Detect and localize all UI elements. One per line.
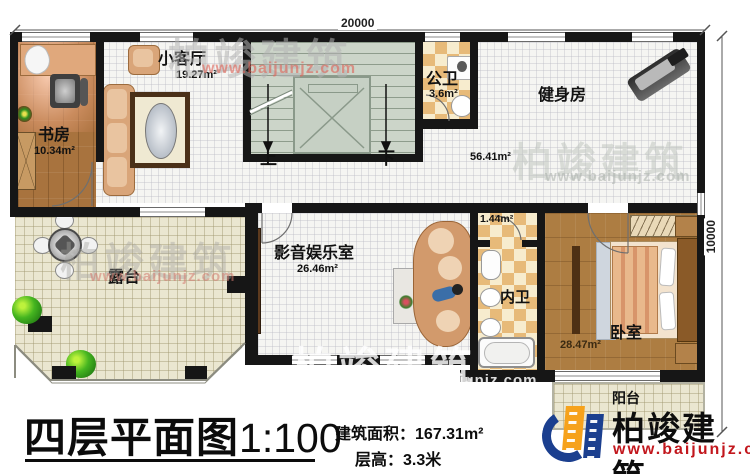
table-flowers-icon — [399, 295, 413, 309]
stat-area-value: 167.31m² — [415, 426, 484, 443]
label-public-bath: 公卫 — [426, 72, 458, 88]
wall-mid-c — [628, 203, 705, 213]
label-gym-area: 56.41m² — [470, 152, 511, 163]
plant-icon — [17, 106, 32, 122]
label-stairs-down: 下 — [378, 150, 395, 167]
media-sofa-cushion — [428, 228, 454, 254]
window — [697, 193, 705, 215]
wall-study-divider — [96, 42, 104, 162]
inner-sink-icon — [480, 288, 501, 307]
wall-bottom-b — [660, 370, 705, 382]
wall-innerbath-right — [537, 213, 545, 370]
label-study-area: 10.34m² — [34, 146, 75, 157]
title-underline — [25, 459, 315, 462]
window — [508, 32, 565, 42]
bed-blanket — [612, 246, 658, 334]
sofa-cushion — [107, 89, 127, 119]
stat-height-value: 3.3米 — [403, 452, 441, 469]
window — [22, 32, 90, 42]
floor-plan-page: 20000 10000 小客厅 19.27m² 书房 10.34m² 公卫 3.… — [0, 0, 750, 474]
brand-url-text: www.baijunjz.com — [613, 441, 750, 459]
stat-floor-height: 层高：3.3米 — [355, 446, 441, 470]
desk-chair-icon — [80, 78, 88, 106]
terrace-chair-icon — [55, 262, 74, 279]
person-head — [452, 284, 463, 295]
label-living-room: 小客厅 — [158, 52, 206, 68]
computer-screen — [55, 79, 75, 103]
label-closet-area: 1.44m² — [480, 214, 513, 225]
wall-innerbath-left — [470, 203, 478, 370]
wall-left — [10, 42, 18, 217]
wall-closet-a — [478, 240, 490, 247]
bush-icon — [12, 296, 42, 324]
plan-title-text: 四层平面图 — [24, 414, 239, 461]
rug-oval-pattern — [145, 103, 177, 159]
window — [380, 355, 425, 365]
wall-bottom-a — [460, 370, 555, 382]
wall-terrace-top-left — [10, 207, 140, 217]
stat-height-label: 层高： — [355, 452, 403, 469]
terrace-pillar — [52, 366, 76, 380]
dimension-top-value: 20000 — [338, 16, 377, 30]
label-study: 书房 — [38, 128, 70, 144]
inner-toilet-icon — [481, 250, 501, 280]
study-wardrobe — [16, 132, 36, 190]
wall-publicbath-right — [470, 42, 478, 129]
inner-sink-icon — [480, 318, 501, 337]
label-living-area: 19.27m² — [176, 70, 217, 81]
wall-publicbath-bottom — [415, 119, 478, 129]
bedroom-tv-panel — [572, 246, 580, 334]
wall-mid-b — [292, 203, 588, 213]
toilet-bowl — [457, 61, 467, 72]
dimension-right-value: 10000 — [704, 218, 718, 255]
page-title: 四层平面图1:100 — [24, 404, 342, 465]
brand-name-text: 柏竣建筑 — [612, 402, 750, 474]
wall-closet-b — [522, 240, 537, 247]
sofa-cushion — [107, 123, 127, 153]
label-media-room: 影音娱乐室 — [274, 246, 354, 262]
wall-stair-right — [415, 42, 423, 154]
logo-building-orange — [562, 406, 585, 450]
bed-headboard — [677, 238, 698, 342]
label-gym: 健身房 — [538, 88, 586, 104]
window — [425, 32, 460, 42]
terrace-pillar — [185, 366, 207, 380]
bathtub-inner — [484, 342, 530, 364]
terrace-pillar — [227, 276, 247, 293]
label-stairs-up: 上 — [260, 150, 277, 167]
label-inner-bath: 内卫 — [500, 290, 530, 305]
label-terrace: 露台 — [108, 270, 140, 286]
window — [292, 355, 337, 365]
sofa-cushion — [107, 157, 127, 187]
dimension-line-right — [717, 31, 727, 437]
label-bedroom: 卧室 — [610, 326, 642, 342]
plan-scale-text: 1:100 — [239, 415, 342, 461]
stat-building-area: 建筑面积：167.31m² — [335, 420, 484, 444]
wall-stair-left — [243, 42, 251, 154]
balcony-slider-door — [555, 371, 660, 381]
media-sofa-cushion — [436, 310, 460, 332]
logo-building-blue — [583, 414, 604, 458]
stat-area-label: 建筑面积： — [335, 426, 415, 443]
label-public-bath-area: 3.6m² — [429, 89, 458, 100]
nightstand-icon — [675, 216, 698, 237]
label-media-area: 26.46m² — [297, 264, 338, 275]
nightstand-icon — [675, 343, 698, 364]
wall-media-bottom-b — [337, 355, 380, 365]
wall-top — [10, 32, 705, 42]
bed-pillow — [659, 248, 677, 287]
terrace-slider-door — [140, 207, 205, 217]
media-sofa-cushion — [438, 256, 462, 280]
window — [140, 32, 193, 42]
wall-media-bottom-c — [425, 355, 478, 365]
brand-logo: 柏竣建筑 www.baijunjz.com — [540, 400, 750, 472]
elevator-top-vent — [308, 84, 358, 93]
wall-media-bottom-a — [245, 355, 292, 365]
label-bedroom-area: 28.47m² — [560, 340, 601, 351]
window — [632, 32, 673, 42]
bed-pillow — [659, 292, 677, 331]
armchair-cushion — [133, 49, 153, 67]
